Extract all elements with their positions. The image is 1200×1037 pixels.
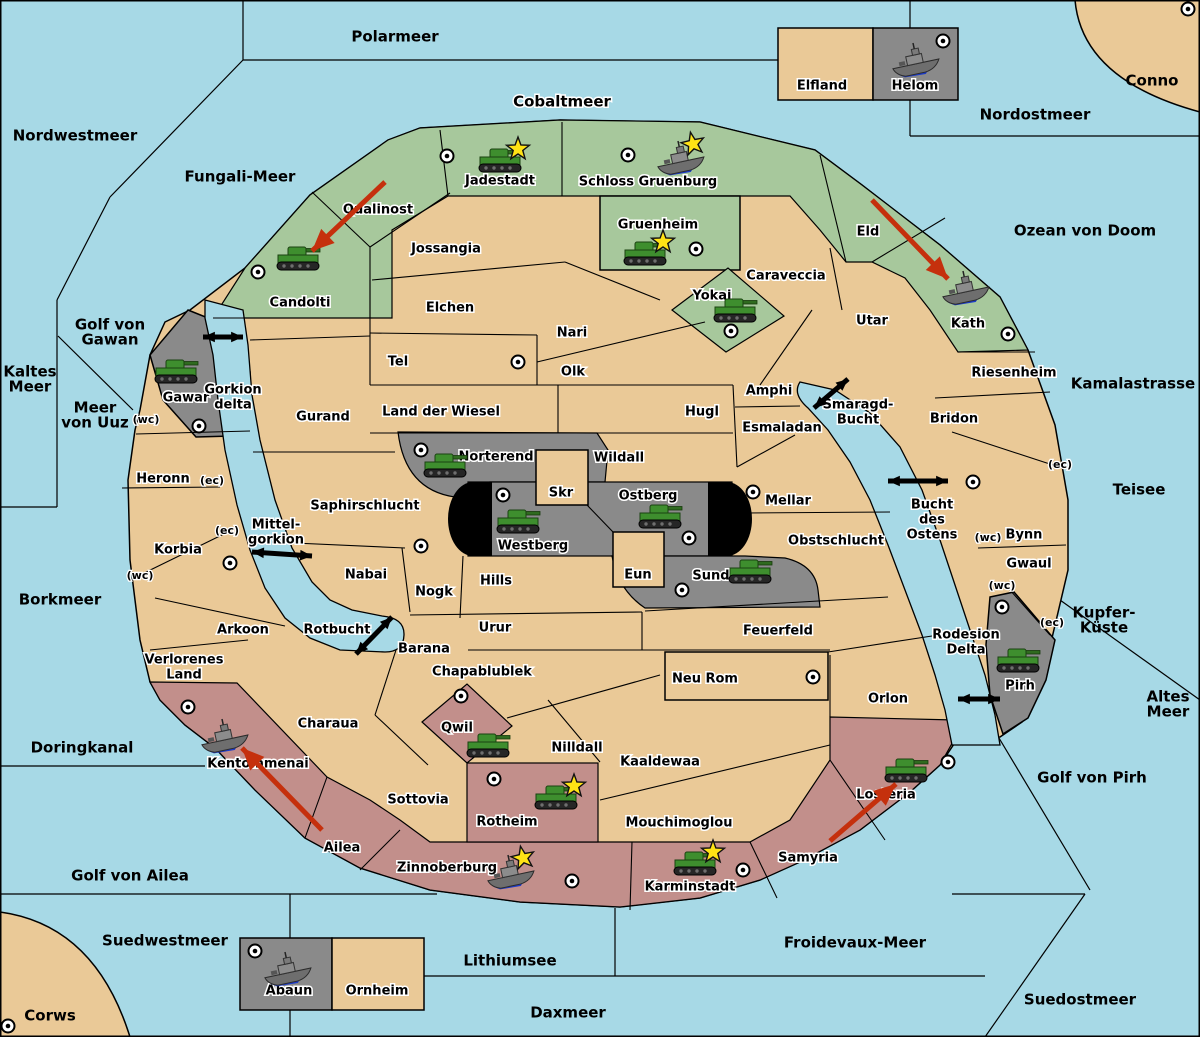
map-canvas: PolarmeerCobaltmeerNordwestmeerFungali-M…	[0, 0, 1200, 1037]
supply-center-icon	[725, 325, 738, 338]
sea-zone-label: Gawan	[81, 331, 138, 349]
sea-zone-label: Corws	[24, 1007, 76, 1025]
sea-zone-label: Cobaltmeer	[513, 93, 611, 111]
territory-label: Bridon	[930, 412, 978, 427]
coast-marker-label: (ec)	[1040, 616, 1064, 629]
territory-label: Kath	[951, 317, 985, 332]
territory-label: Nari	[557, 326, 588, 341]
territory-label: Gwaul	[1006, 557, 1051, 572]
coast-marker-label: (wc)	[133, 413, 160, 426]
territory-label: Nabai	[345, 568, 387, 583]
supply-center-icon	[441, 150, 454, 163]
territory-label: Mouchimoglou	[626, 816, 733, 831]
territory-label: Ailea	[324, 841, 361, 856]
territory-label: Elfland	[797, 79, 847, 94]
sea-zone-label: Nordostmeer	[980, 106, 1091, 124]
territory-label: Elchen	[426, 301, 474, 316]
territory-label: Gorkion	[204, 383, 261, 398]
coast-marker-label: (ec)	[200, 474, 224, 487]
sea-zone-label: Teisee	[1113, 481, 1166, 499]
territory-shape-ornheim	[332, 938, 424, 1010]
territory-label: Westberg	[498, 539, 568, 554]
territory-label: Chapablublek	[432, 665, 532, 680]
territory-label: Nogk	[415, 585, 453, 600]
territory-label: Rodesion	[932, 628, 999, 643]
coast-marker-label: (ec)	[1048, 458, 1072, 471]
territory-label: Orlon	[868, 692, 908, 707]
sea-zone-label: Conno	[1126, 72, 1179, 90]
coast-marker-label: (ec)	[215, 524, 239, 537]
territory-shape-rotheim	[467, 763, 598, 842]
territory-label: Esmaladan	[742, 421, 822, 436]
strategy-game-map: PolarmeerCobaltmeerNordwestmeerFungali-M…	[0, 0, 1200, 1037]
territory-label: Jadestadt	[464, 174, 535, 189]
territory-label: Gruenheim	[618, 218, 698, 233]
territory-label: Obstschlucht	[788, 534, 884, 549]
supply-center-icon	[622, 149, 635, 162]
territory-label: Bynn	[1006, 528, 1043, 543]
supply-center-icon	[415, 540, 428, 553]
territory-label: Neu Rom	[672, 672, 738, 687]
supply-center-icon	[942, 756, 955, 769]
supply-center-icon	[488, 773, 501, 786]
territory-label: Gurand	[296, 410, 350, 425]
sea-zone-label: Kamalastrasse	[1071, 375, 1195, 393]
territory-label: Korbia	[154, 543, 202, 558]
territory-label: Urur	[479, 621, 512, 636]
territory-label: Zinnoberburg	[397, 861, 497, 876]
territory-label: des	[919, 513, 945, 528]
territory-label: Saphirschlucht	[310, 499, 419, 514]
territory-label: Verlorenes	[144, 653, 223, 668]
supply-center-icon	[967, 476, 980, 489]
territory-label: Jossangia	[410, 242, 481, 257]
supply-center-icon	[224, 557, 237, 570]
territory-label: Delta	[946, 643, 985, 658]
territory-label: Schloss Gruenburg	[579, 175, 717, 190]
territory-label: Tel	[388, 355, 408, 370]
supply-center-icon	[996, 601, 1009, 614]
territory-label: Karminstadt	[645, 880, 736, 895]
supply-center-icon	[455, 690, 468, 703]
territory-label: Charaua	[298, 717, 359, 732]
supply-center-icon	[807, 671, 820, 684]
territory-label: Bucht	[911, 498, 953, 513]
sea-zone-label: Ozean von Doom	[1014, 222, 1156, 240]
supply-center-icon	[1182, 3, 1195, 16]
territory-label: Eun	[624, 568, 651, 583]
territory-label: Kaaldewaa	[620, 755, 700, 770]
territory-label: Candolti	[270, 296, 331, 311]
sea-zone-label: Küste	[1080, 619, 1128, 637]
supply-center-icon	[2, 1020, 15, 1033]
supply-center-icon	[1002, 328, 1015, 341]
sea-zone-label: Daxmeer	[530, 1004, 606, 1022]
territory-label: Norterend	[458, 450, 533, 465]
territory-label: Mittel-	[252, 518, 301, 533]
territory-label: Ornheim	[346, 984, 409, 999]
sea-zone-label: Froidevaux-Meer	[784, 934, 927, 952]
supply-center-icon	[193, 420, 206, 433]
sea-zone-label: Meer	[1147, 703, 1190, 721]
sea-zone-label: Polarmeer	[351, 28, 439, 46]
supply-center-icon	[252, 266, 265, 279]
coast-marker-label: (wc)	[989, 579, 1016, 592]
sea-zone-label: Borkmeer	[19, 591, 102, 609]
territory-label: Barana	[398, 642, 450, 657]
territory-label: Rotbucht	[304, 623, 371, 638]
sea-zone-label: Doringkanal	[31, 739, 134, 757]
territory-label: Amphi	[746, 384, 793, 399]
territory-label: Eld	[857, 225, 880, 240]
territory-label: Riesenheim	[971, 366, 1056, 381]
territory-label: Sottovia	[387, 793, 448, 808]
territory-label: delta	[214, 398, 252, 413]
territory-label: Samyria	[778, 851, 838, 866]
sea-zone-label: Fungali-Meer	[185, 168, 296, 186]
territory-label: Hills	[480, 574, 512, 589]
coast-marker-label: (wc)	[975, 531, 1002, 544]
territory-label: gorkion	[248, 533, 304, 548]
territory-label: Ostens	[907, 528, 958, 543]
territory-label: Sund	[692, 569, 729, 584]
supply-center-icon	[676, 584, 689, 597]
supply-center-icon	[683, 532, 696, 545]
territory-label: Qwil	[441, 721, 473, 736]
supply-center-icon	[747, 486, 760, 499]
supply-center-icon	[566, 875, 579, 888]
territory-label: Smaragd-	[823, 398, 894, 413]
territory-label: Pirh	[1005, 679, 1035, 694]
territory-label: Ostberg	[619, 489, 678, 504]
territory-label: Abaun	[266, 984, 313, 999]
territory-label: Land	[166, 668, 202, 683]
sea-zone-label: Lithiumsee	[463, 952, 556, 970]
territory-label: Rotheim	[476, 815, 537, 830]
supply-center-icon	[249, 945, 262, 958]
territory-label: Helom	[892, 79, 939, 94]
supply-center-icon	[512, 356, 525, 369]
coast-marker-label: (wc)	[127, 569, 154, 582]
territory-label: Mellar	[765, 494, 811, 509]
supply-center-icon	[690, 243, 703, 256]
territory-label: Skr	[549, 486, 574, 501]
territory-label: Wildall	[594, 451, 644, 466]
supply-center-icon	[937, 35, 950, 48]
territory-label: Olk	[561, 365, 586, 380]
supply-center-icon	[737, 864, 750, 877]
territory-label: Utar	[856, 314, 889, 329]
sea-zone-label: Nordwestmeer	[13, 127, 138, 145]
sea-zone-label: von Uuz	[61, 414, 129, 432]
supply-center-icon	[182, 701, 195, 714]
territory-label: Gawar	[163, 391, 210, 406]
sea-zone-label: Meer	[9, 378, 52, 396]
territory-label: Caraveccia	[746, 269, 825, 284]
sea-zone-label: Suedostmeer	[1024, 991, 1137, 1009]
supply-center-icon	[415, 444, 428, 457]
territory-label: Bucht	[837, 413, 879, 428]
territory-label: Land der Wiesel	[382, 405, 500, 420]
sea-zone-label: Golf von Pirh	[1037, 769, 1147, 787]
territory-label: Feuerfeld	[743, 624, 813, 639]
sea-zone-label: Suedwestmeer	[102, 932, 228, 950]
supply-center-icon	[497, 489, 510, 502]
territory-label: Heronn	[136, 472, 190, 487]
territory-shape-gruenheim	[600, 196, 740, 270]
territory-label: Nilldall	[551, 741, 602, 756]
territory-label: Arkoon	[217, 623, 269, 638]
territory-label: Hugl	[685, 405, 719, 420]
sea-zone-label: Golf von Ailea	[71, 867, 189, 885]
